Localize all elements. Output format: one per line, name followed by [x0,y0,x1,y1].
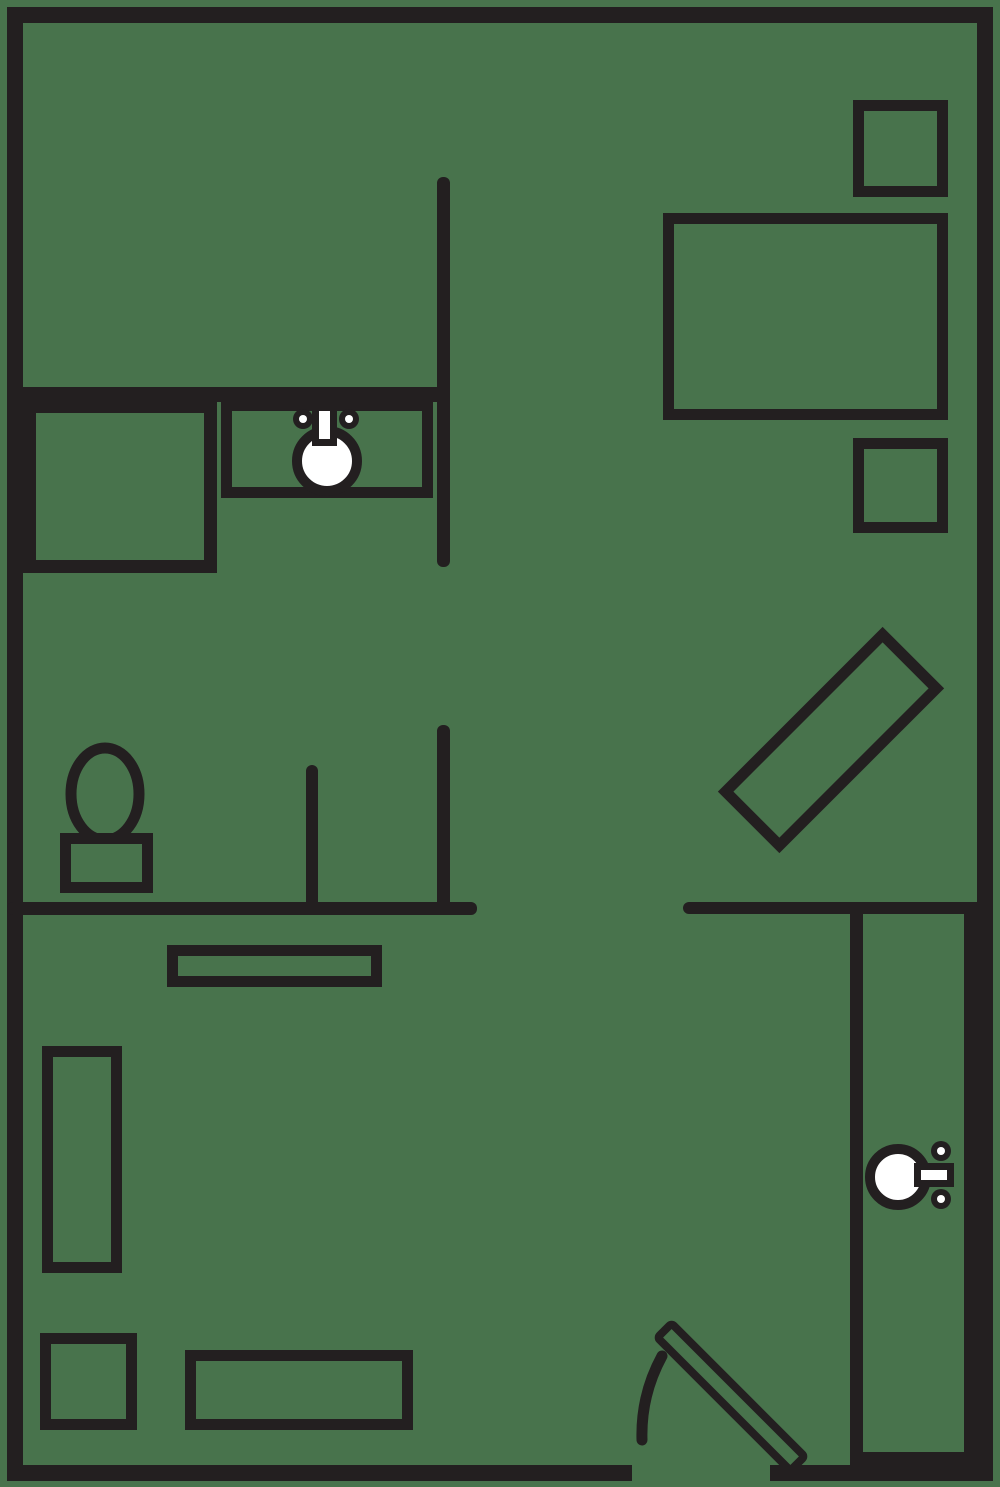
wall-ensuite-south [850,1452,993,1466]
entry-door-swing-arc [642,1356,662,1440]
vanity-knob-right-dot [345,415,353,423]
floor-plan [0,0,1000,1487]
wall-divider-upper [437,177,450,567]
ensuite-knob-bottom-dot [937,1195,945,1203]
sofa [48,1052,117,1268]
dresser-diagonal [726,635,937,846]
wall-ensuite-east [964,902,977,1481]
entry-door-leaf [657,1323,804,1470]
kitchen-closet-box [30,407,211,567]
wall-hall-west [7,902,477,915]
wall-bathroom-stub [306,765,318,913]
toilet-tank [66,839,148,888]
wall-ensuite-west [850,902,863,1465]
wall-hall-east [683,902,977,914]
wall-south-right [770,1465,993,1481]
ensuite-faucet [918,1167,951,1184]
nightstand-south [859,444,943,528]
toilet-bowl [71,748,139,840]
bed [669,219,943,415]
vanity-faucet [316,408,334,443]
wall-south-left [7,1465,632,1481]
wall-divider-lower [437,725,450,913]
floorplan-svg [0,0,1000,1487]
nightstand-north [859,106,943,192]
side-table [46,1339,132,1425]
coffee-table [191,1356,408,1425]
ensuite-knob-top-dot [937,1147,945,1155]
wall-north [7,7,993,23]
wall-kitchen-south [7,387,450,402]
vanity-knob-left-dot [299,415,307,423]
wall-east [977,7,993,1481]
wall-west [7,7,23,1481]
shelf-counter [173,951,377,982]
